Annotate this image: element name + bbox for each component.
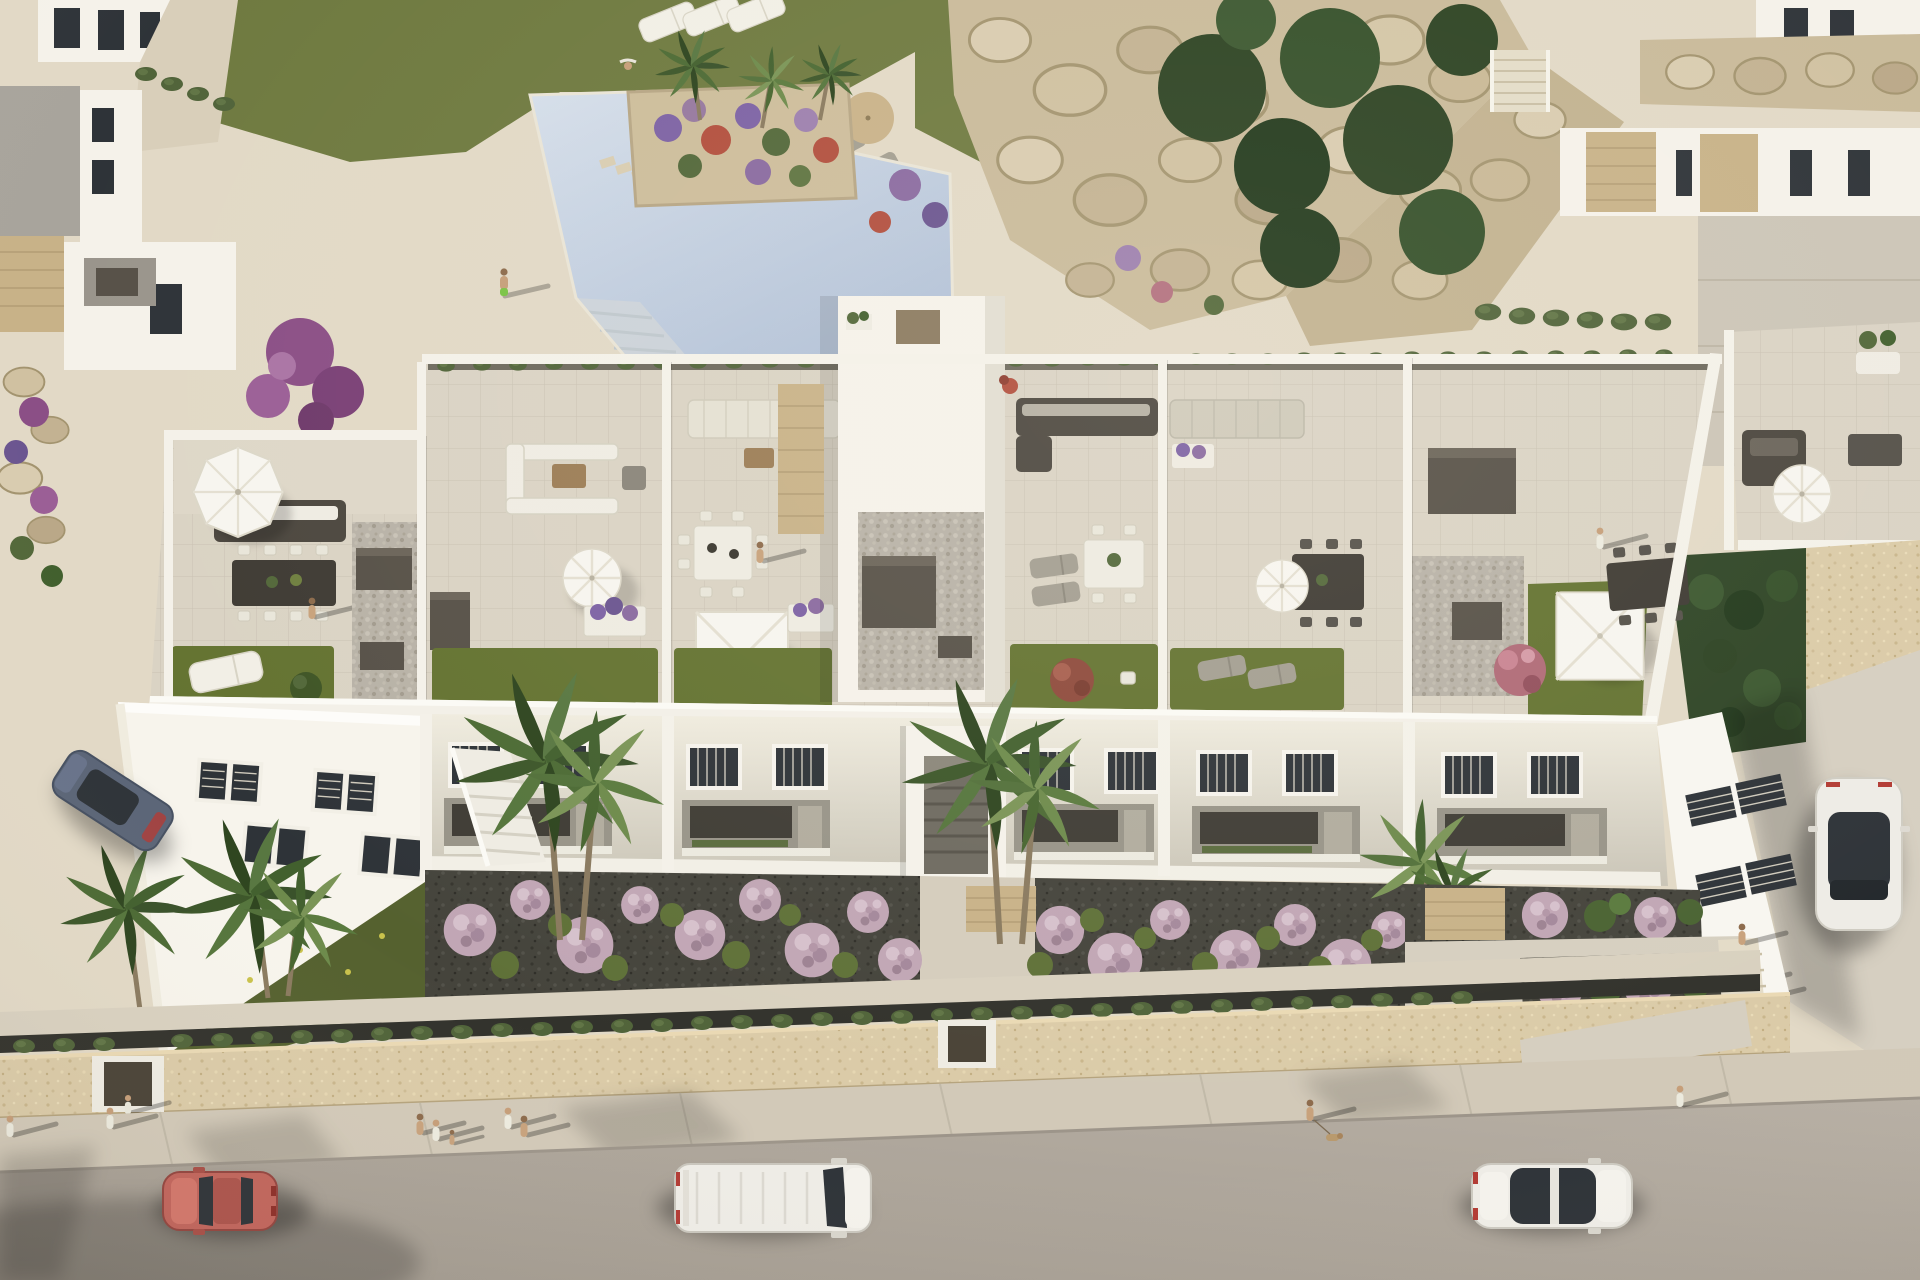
render-canvas <box>0 0 1920 1280</box>
light-grade <box>0 0 1920 1280</box>
architectural-render <box>0 0 1920 1280</box>
